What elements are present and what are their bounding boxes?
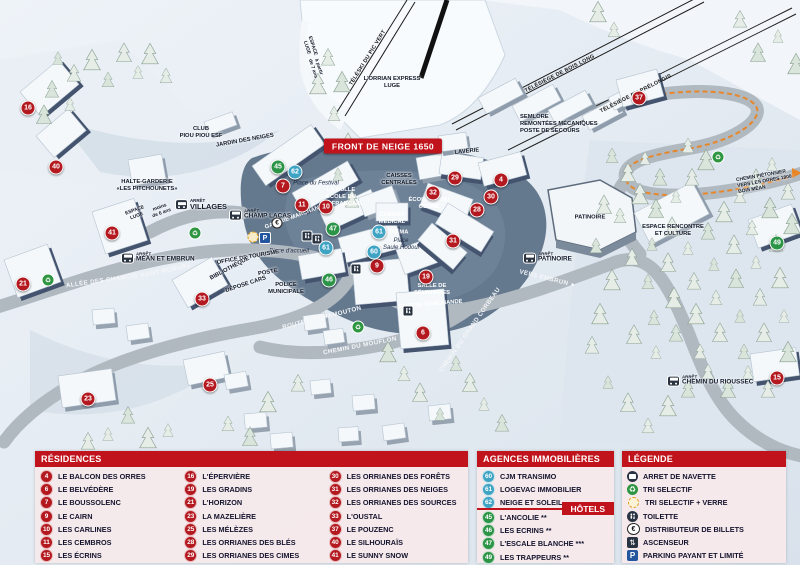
agence-row-60: 60CJM TRANSIMO	[477, 470, 614, 483]
map-marker-11-8[interactable]: 11	[295, 198, 310, 213]
bus-stop-m-an-et-embrun: ARRÊTMÉAN ET EMBRUN	[122, 253, 195, 264]
marker-badge-11: 11	[40, 536, 53, 549]
map-marker-15-20[interactable]: 15	[770, 371, 785, 386]
residence-label-32: LES ORRIANES DES SOURCES	[347, 498, 457, 507]
map-marker-30-15[interactable]: 30	[484, 190, 499, 205]
bus-stop-name: PATINOIRE	[538, 257, 572, 263]
legende-row-arret-de-navette: ARRET DE NAVETTE	[622, 470, 786, 483]
bus-stop-name: MÉAN ET EMBRUN	[136, 257, 195, 263]
residence-row-30: 30LES ORRIANES DES FORÊTS	[324, 470, 468, 483]
agence-label-60: CJM TRANSIMO	[500, 472, 556, 481]
residence-row-23: 23LA MAZELIÈRE	[179, 510, 323, 523]
hotel-row-49: 49LES TRAPPEURS **	[477, 551, 614, 564]
map-marker-9-10[interactable]: 9	[370, 259, 385, 274]
map-marker-16-0[interactable]: 16	[21, 101, 36, 116]
map-marker-29-13[interactable]: 29	[448, 171, 463, 186]
bus-stop-name: CHAMP LACAS	[244, 214, 291, 220]
hotel-label-46: LES ECRINS **	[500, 526, 552, 535]
bus-stop-name: CHEMIN DU RIOUSSEC	[682, 380, 753, 386]
marker-badge-37: 37	[329, 523, 342, 536]
map-marker-21-2[interactable]: 21	[16, 277, 31, 292]
marker-badge-60: 60	[482, 470, 495, 483]
recycle-icon-1: ♻	[189, 227, 202, 240]
legend-symbols-panel: LÉGENDE ARRET DE NAVETTE♻TRI SELECTIFTRI…	[622, 451, 786, 563]
wc-icon-7	[403, 306, 414, 317]
residences-columns: 4LE BALCON DES ORRES6LE BELVÉDÈRE7LE BOU…	[35, 467, 468, 562]
map-marker-62-25[interactable]: 62	[288, 165, 303, 180]
residence-row-25: 25LES MÉLÈZES	[179, 523, 323, 536]
residence-label-7: LE BOUSSOLENC	[58, 498, 121, 507]
residence-row-4: 4LE BALCON DES ORRES	[35, 470, 179, 483]
marker-badge-16: 16	[184, 470, 197, 483]
marker-badge-25: 25	[184, 523, 197, 536]
legende-row-distributeur-de-billets: €DISTRIBUTEUR DE BILLETS	[622, 523, 786, 536]
marker-badge-31: 31	[329, 483, 342, 496]
residence-row-19: 19LES GRADINS	[179, 483, 323, 496]
legende-row-parking-payant-et-limit: PPARKING PAYANT ET LIMITÉ	[622, 549, 786, 562]
residences-column-3: 30LES ORRIANES DES FORÊTS31LES ORRIANES …	[324, 470, 468, 562]
map-marker-47-22[interactable]: 47	[326, 222, 341, 237]
map-marker-19-11[interactable]: 19	[419, 270, 434, 285]
bus-stop-text: ARRÊTPATINOIRE	[538, 253, 572, 264]
residence-label-11: LES CEMBROS	[58, 538, 112, 547]
residence-label-23: LA MAZELIÈRE	[202, 512, 256, 521]
residence-row-41: 41LE SUNNY SNOW	[324, 549, 468, 562]
residence-row-16: 16L'ÉPERVIÈRE	[179, 470, 323, 483]
wc-icon	[627, 511, 638, 522]
marker-badge-40: 40	[329, 536, 342, 549]
euro-icon: €	[627, 523, 640, 535]
bus-stop-chemin-du-rioussec: ARRÊTCHEMIN DU RIOUSSEC	[668, 376, 753, 387]
residence-label-4: LE BALCON DES ORRES	[58, 472, 146, 481]
hotel-row-46: 46LES ECRINS **	[477, 524, 614, 537]
marker-badge-61: 61	[482, 483, 495, 496]
map-marker-40-1[interactable]: 40	[49, 160, 64, 175]
marker-badge-47: 47	[482, 537, 495, 550]
marker-badge-32: 32	[329, 496, 342, 509]
map-marker-7-7[interactable]: 7	[276, 179, 291, 194]
bus-stop-text: ARRÊTMÉAN ET EMBRUN	[136, 253, 195, 264]
residences-header: RÉSIDENCES	[35, 451, 468, 467]
bus-stop-icon	[230, 211, 241, 220]
map-marker-49-24[interactable]: 49	[770, 236, 785, 251]
marker-badge-23: 23	[184, 510, 197, 523]
marker-badge-7: 7	[40, 496, 53, 509]
residence-label-16: L'ÉPERVIÈRE	[202, 472, 250, 481]
map-marker-46-23[interactable]: 46	[322, 273, 337, 288]
residence-label-29: LES ORRIANES DES CIMES	[202, 551, 299, 560]
map-marker-31-18[interactable]: 31	[446, 234, 461, 249]
front-de-neige-banner: FRONT DE NEIGE 1650	[324, 139, 442, 154]
bus-stop-champ-lacas: ARRÊTCHAMP LACAS	[230, 210, 291, 221]
legende-label-ascenseur: ASCENSEUR	[643, 538, 689, 547]
residences-column-2: 16L'ÉPERVIÈRE19LES GRADINS21L'HORIZON23L…	[179, 470, 323, 562]
marker-badge-4: 4	[40, 470, 53, 483]
hotels-list: 45L'ANCOLIE **46LES ECRINS **47L'ESCALE …	[477, 511, 614, 564]
marker-badge-49: 49	[482, 551, 495, 564]
bus-stop-villages: ARRÊTVILLAGES	[176, 199, 227, 211]
legende-row-tri-selectif-verre: TRI SELECTIF + VERRE	[622, 496, 786, 509]
marker-badge-30: 30	[329, 470, 342, 483]
residence-row-7: 7LE BOUSSOLENC	[35, 496, 179, 509]
marker-badge-21: 21	[184, 496, 197, 509]
marker-badge-10: 10	[40, 523, 53, 536]
map-marker-32-16[interactable]: 32	[426, 186, 441, 201]
residence-label-33: L'OUSTAL	[347, 512, 383, 521]
bus-stop-icon	[668, 377, 679, 386]
legende-label-distributeur-de-billets: DISTRIBUTEUR DE BILLETS	[645, 525, 744, 534]
legende-row-tri-selectif: ♻TRI SELECTIF	[622, 483, 786, 496]
residences-column-1: 4LE BALCON DES ORRES6LE BELVÉDÈRE7LE BOU…	[35, 470, 179, 562]
bus-stop-text: ARRÊTCHAMP LACAS	[244, 210, 291, 221]
agence-label-61: LOGEVAC IMMOBILIER	[500, 485, 581, 494]
wc-icon-6	[351, 264, 362, 275]
hotel-label-49: LES TRAPPEURS **	[500, 553, 569, 562]
legend-residences-panel: RÉSIDENCES 4LE BALCON DES ORRES6LE BELVÉ…	[35, 451, 468, 563]
residence-label-28: LES ORRIANES DES BLÉS	[202, 538, 295, 547]
bus-stop-text: ARRÊTCHEMIN DU RIOUSSEC	[682, 376, 753, 387]
map-marker-6-12[interactable]: 6	[416, 326, 431, 341]
residence-row-37: 37LE POUZENC	[324, 523, 468, 536]
map-marker-45-21[interactable]: 45	[271, 160, 286, 175]
residence-row-33: 33L'OUSTAL	[324, 510, 468, 523]
legend-agences-panel: AGENCES IMMOBILIÈRES 60CJM TRANSIMO61LOG…	[477, 451, 614, 563]
residence-label-37: LE POUZENC	[347, 525, 394, 534]
legende-row-ascenseur: ⇅ASCENSEUR	[622, 536, 786, 549]
legende-label-toilette: TOILETTE	[643, 512, 678, 521]
residence-row-31: 31LES ORRIANES DES NEIGES	[324, 483, 468, 496]
glass-icon	[628, 497, 639, 508]
recycle-icon-3: ♻	[712, 151, 725, 164]
bus-stop-name: VILLAGES	[190, 204, 227, 211]
residence-label-19: LES GRADINS	[202, 485, 252, 494]
residence-row-10: 10LES CARLINES	[35, 523, 179, 536]
glass-icon-10	[248, 232, 259, 243]
bus-stop-text: ARRÊTVILLAGES	[190, 199, 227, 211]
marker-badge-33: 33	[329, 510, 342, 523]
residence-row-11: 11LES CEMBROS	[35, 536, 179, 549]
agences-header: AGENCES IMMOBILIÈRES	[477, 451, 614, 467]
legende-label-arret-de-navette: ARRET DE NAVETTE	[643, 472, 716, 481]
recycle-icon: ♻	[627, 484, 638, 495]
residence-label-30: LES ORRIANES DES FORÊTS	[347, 472, 450, 481]
map-marker-61-28[interactable]: 61	[372, 225, 387, 240]
bus-glyph	[629, 474, 636, 479]
residence-label-25: LES MÉLÈZES	[202, 525, 253, 534]
residence-row-6: 6LE BELVÉDÈRE	[35, 483, 179, 496]
marker-badge-45: 45	[482, 511, 495, 524]
bus-stop-icon	[122, 254, 133, 263]
hotels-header: HÔTELS	[562, 502, 614, 515]
map-marker-28-17[interactable]: 28	[470, 203, 485, 218]
map-marker-10-9[interactable]: 10	[319, 200, 334, 215]
hotel-label-45: L'ANCOLIE **	[500, 513, 547, 522]
legende-header: LÉGENDE	[622, 451, 786, 467]
hotel-label-47: L'ESCALE BLANCHE ***	[500, 539, 584, 548]
legende-label-parking-payant-et-limit: PARKING PAYANT ET LIMITÉ	[643, 551, 744, 560]
map-marker-37-19[interactable]: 37	[632, 91, 647, 106]
map-marker-33-4[interactable]: 33	[195, 292, 210, 307]
map-marker-25-6[interactable]: 25	[203, 378, 218, 393]
residence-row-9: 9LE CAIRN	[35, 510, 179, 523]
residence-label-9: LE CAIRN	[58, 512, 92, 521]
marker-badge-6: 6	[40, 483, 53, 496]
marker-badge-29: 29	[184, 549, 197, 562]
bus-stop-icon	[176, 201, 187, 210]
marker-badge-46: 46	[482, 524, 495, 537]
map-marker-60-27[interactable]: 60	[367, 245, 382, 260]
marker-badge-28: 28	[184, 536, 197, 549]
marker-badge-41: 41	[329, 549, 342, 562]
map-marker-23-5[interactable]: 23	[81, 392, 96, 407]
residence-label-41: LE SUNNY SNOW	[347, 551, 409, 560]
hotel-row-47: 47L'ESCALE BLANCHE ***	[477, 537, 614, 550]
parking-icon: P	[627, 550, 638, 561]
residence-row-40: 40LE SILHOURAÏS	[324, 536, 468, 549]
residence-row-29: 29LES ORRIANES DES CIMES	[179, 549, 323, 562]
marker-badge-15: 15	[40, 549, 53, 562]
residence-label-40: LE SILHOURAÏS	[347, 538, 403, 547]
bus-icon	[627, 471, 638, 482]
recycle-icon-0: ♻	[42, 274, 55, 287]
marker-badge-9: 9	[40, 510, 53, 523]
parking-icon-9: P	[259, 232, 271, 244]
residence-label-21: L'HORIZON	[202, 498, 242, 507]
map-marker-61-26[interactable]: 61	[319, 241, 334, 256]
marker-badge-19: 19	[184, 483, 197, 496]
residence-row-15: 15LES ÉCRINS	[35, 549, 179, 562]
residence-row-32: 32LES ORRIANES DES SOURCES	[324, 496, 468, 509]
agence-row-61: 61LOGEVAC IMMOBILIER	[477, 483, 614, 496]
legende-label-tri-selectif: TRI SELECTIF	[643, 485, 692, 494]
map-marker-4-14[interactable]: 4	[494, 173, 509, 188]
residence-label-31: LES ORRIANES DES NEIGES	[347, 485, 448, 494]
residence-row-28: 28LES ORRIANES DES BLÉS	[179, 536, 323, 549]
bus-stop-icon	[524, 254, 535, 263]
map-marker-41-3[interactable]: 41	[105, 226, 120, 241]
ski-resort-map: FRONT DE NEIGE 1650 16402141332325711109…	[0, 0, 800, 565]
legende-label-tri-selectif-verre: TRI SELECTIF + VERRE	[645, 498, 728, 507]
legende-row-toilette: TOILETTE	[622, 510, 786, 523]
residence-row-21: 21L'HORIZON	[179, 496, 323, 509]
recycle-icon-2: ♻	[352, 321, 365, 334]
bus-stop-patinoire: ARRÊTPATINOIRE	[524, 253, 572, 264]
elevator-icon: ⇅	[627, 537, 638, 548]
residence-label-6: LE BELVÉDÈRE	[58, 485, 113, 494]
residence-label-15: LES ÉCRINS	[58, 551, 102, 560]
legende-list: ARRET DE NAVETTE♻TRI SELECTIFTRI SELECTI…	[622, 467, 786, 562]
agence-label-62: NEIGE ET SOLEIL	[500, 498, 562, 507]
residence-label-10: LES CARLINES	[58, 525, 112, 534]
